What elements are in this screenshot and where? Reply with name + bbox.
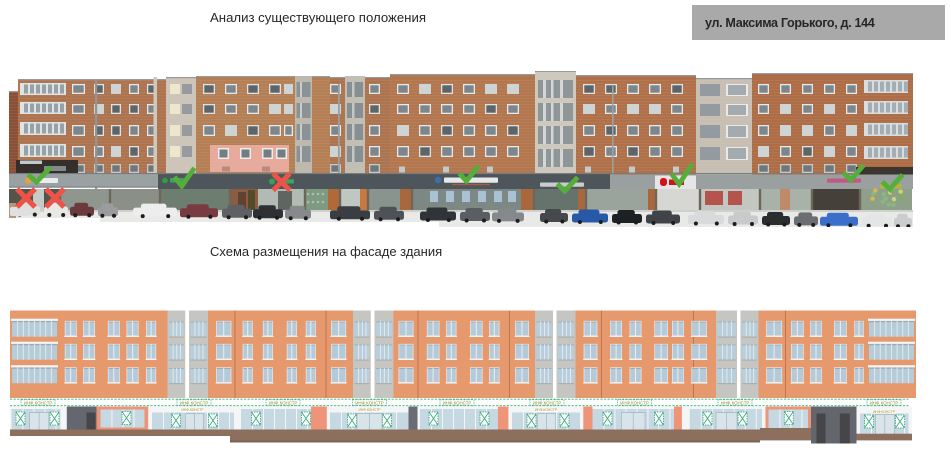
svg-text:ИНФ.КОНСТР: ИНФ.КОНСТР <box>721 400 750 405</box>
svg-text:ИНФ.КОНСТР: ИНФ.КОНСТР <box>443 400 472 405</box>
svg-text:ИНФ.КОНСТР: ИНФ.КОНСТР <box>358 408 381 412</box>
svg-text:ИНФ.КОНСТР: ИНФ.КОНСТР <box>180 400 209 405</box>
svg-text:ИНФ.КОНСТР: ИНФ.КОНСТР <box>870 400 899 405</box>
svg-text:ИНФ.КОНСТР: ИНФ.КОНСТР <box>873 410 896 414</box>
svg-text:ИНФ.КОНСТР: ИНФ.КОНСТР <box>24 400 53 405</box>
svg-text:ИНФ.КОНСТР: ИНФ.КОНСТР <box>355 400 384 405</box>
svg-text:ИНФ.КОНСТР: ИНФ.КОНСТР <box>535 408 558 412</box>
svg-text:ИНФ.КОНСТР: ИНФ.КОНСТР <box>620 400 649 405</box>
svg-text:ИНФ.КОНСТР: ИНФ.КОНСТР <box>181 408 204 412</box>
svg-text:ИНФ.КОНСТР: ИНФ.КОНСТР <box>269 400 298 405</box>
svg-text:ИНФ.КОНСТР: ИНФ.КОНСТР <box>533 400 562 405</box>
